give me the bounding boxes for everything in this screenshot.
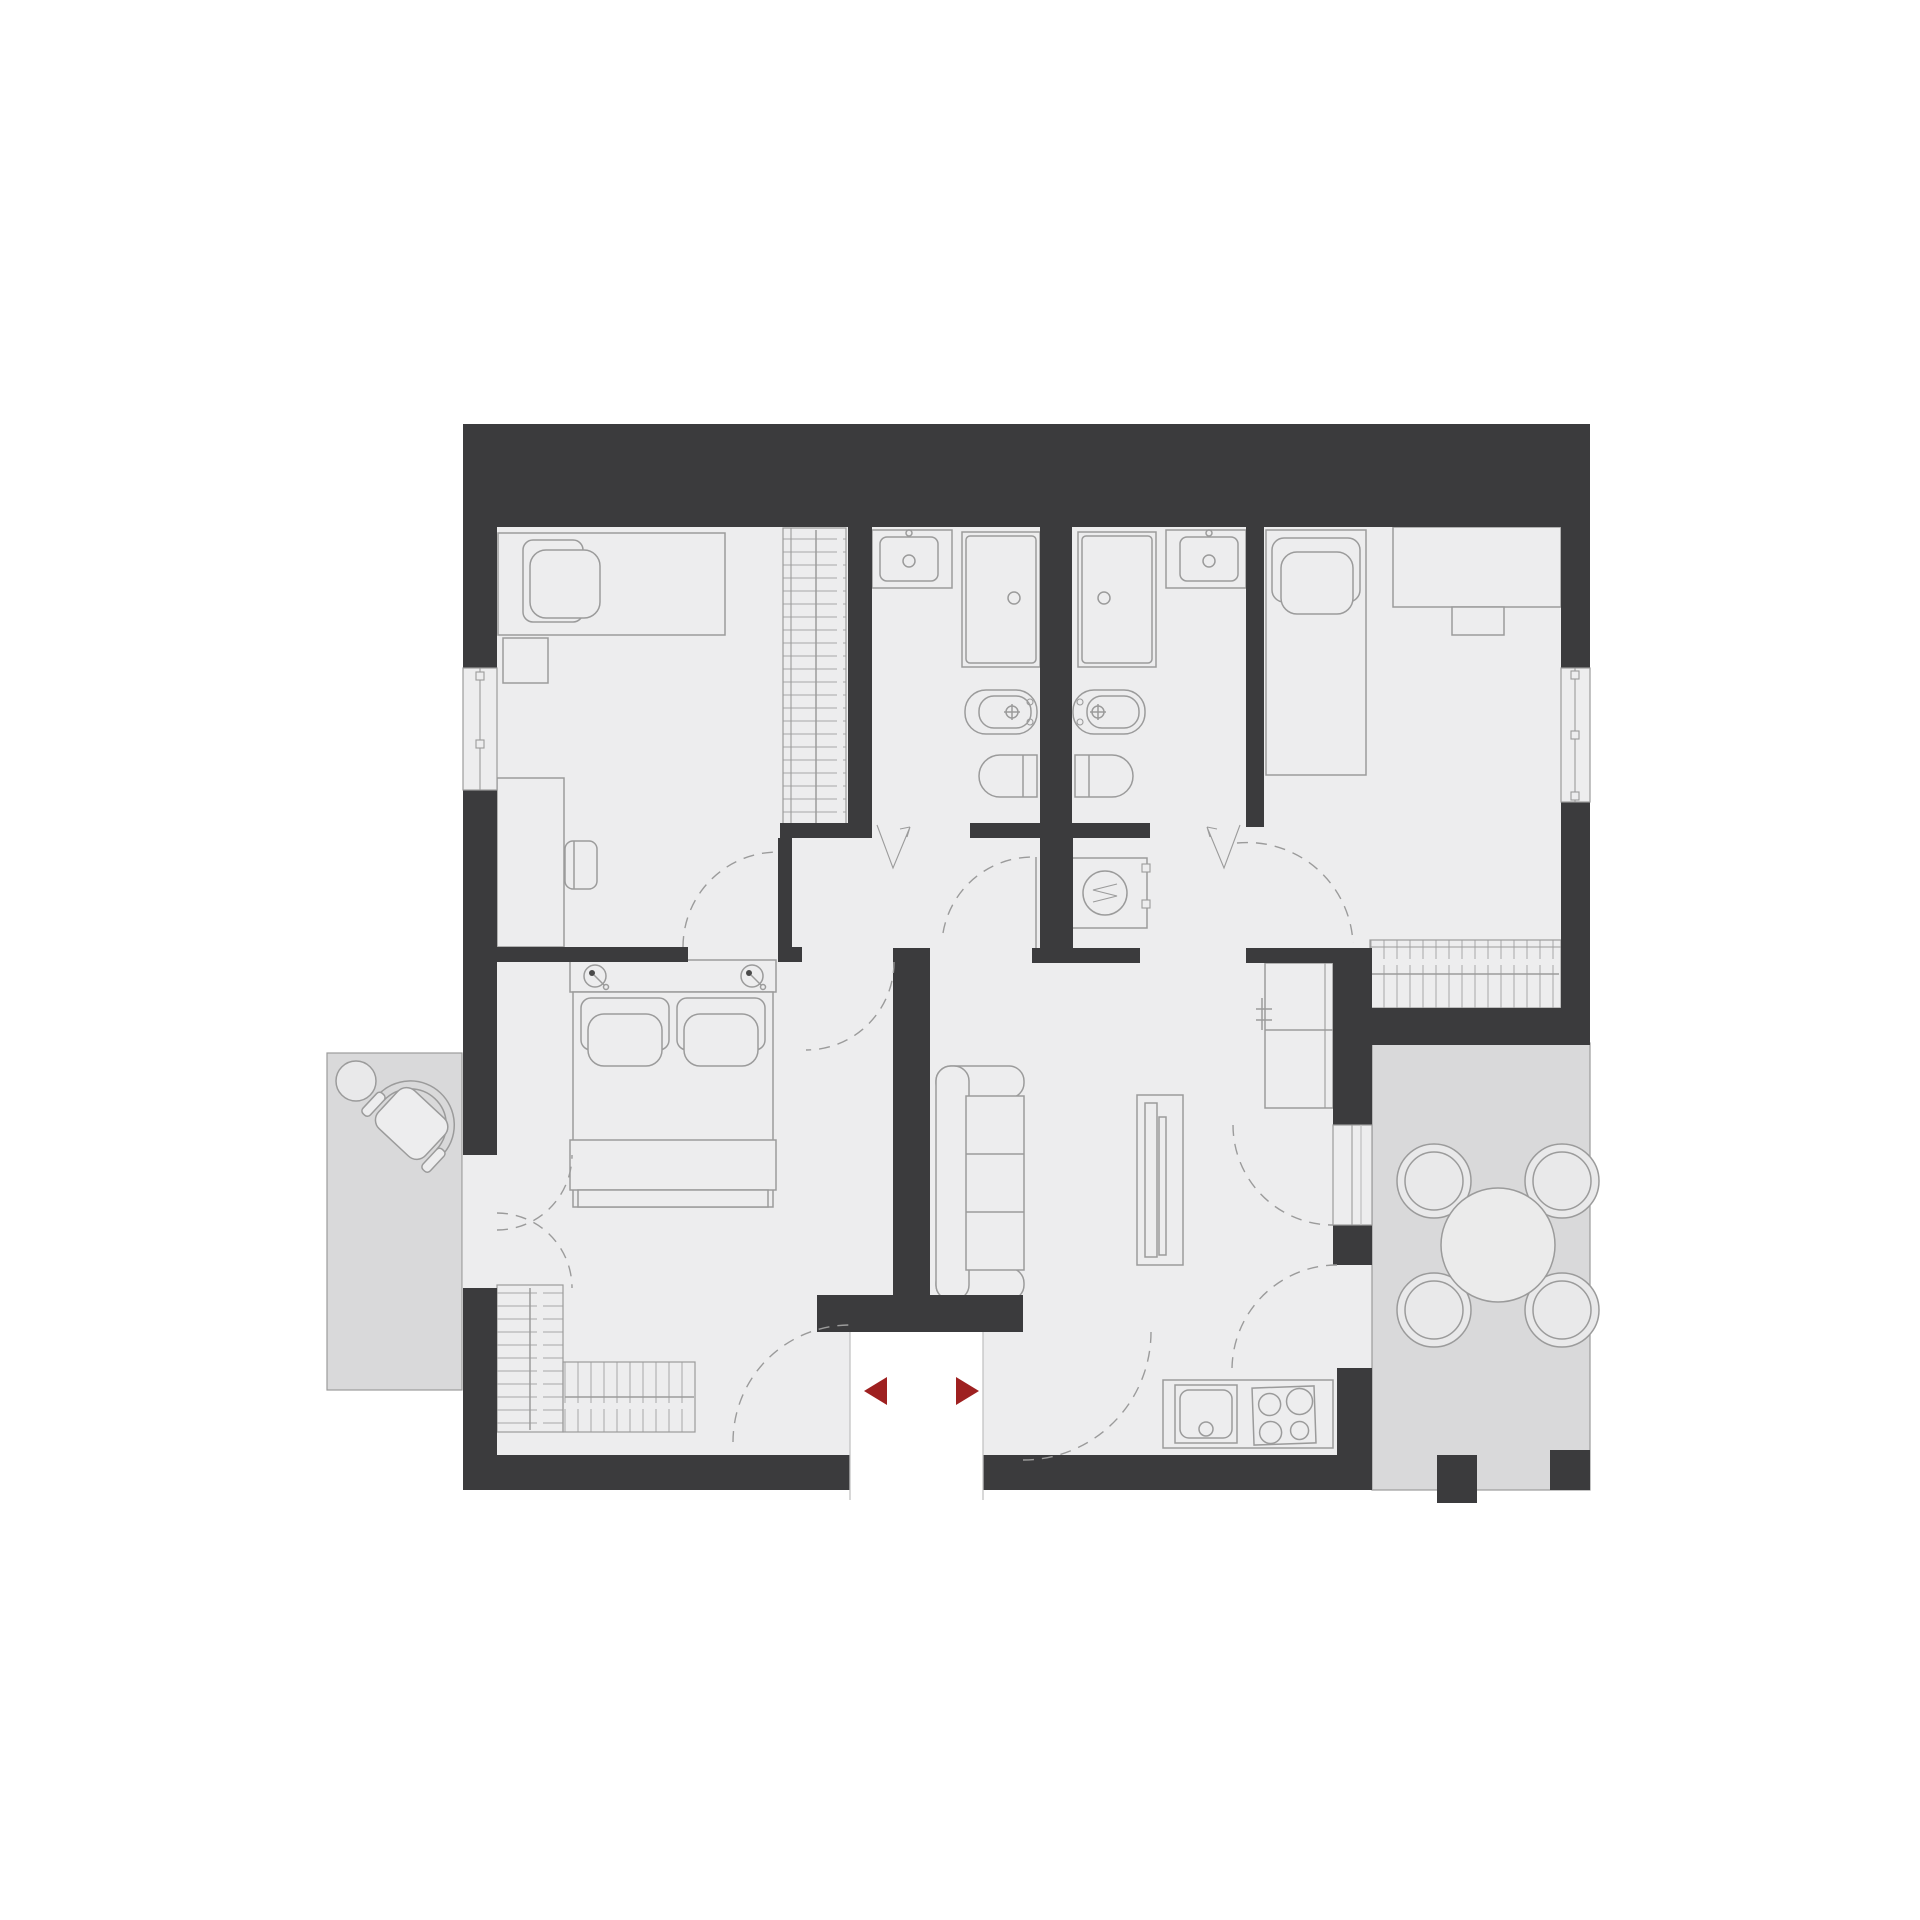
wall-bath1-bottom-b bbox=[970, 823, 1072, 838]
terrace-side-table bbox=[336, 1061, 376, 1101]
wall-kitchen-balcony bbox=[1333, 948, 1372, 1125]
window-handle bbox=[476, 672, 484, 680]
window-right bbox=[1561, 668, 1590, 802]
sofa-back bbox=[936, 1066, 969, 1300]
master-pillow-right-inner bbox=[684, 1014, 758, 1066]
master-pillow-left-inner bbox=[588, 1014, 662, 1066]
wall-washer-closet bbox=[1040, 838, 1073, 948]
wall-balcony-window-post bbox=[1333, 1225, 1372, 1265]
wall-balcony-door-post bbox=[1337, 1368, 1372, 1455]
bath2-bathtub bbox=[1078, 532, 1156, 667]
bedroom2-pillow-inner bbox=[1281, 552, 1353, 614]
wall-between-baths bbox=[1040, 527, 1072, 838]
window-handle bbox=[1571, 671, 1579, 679]
sofa-seat bbox=[966, 1096, 1024, 1270]
window-handle bbox=[1571, 792, 1579, 800]
wall-master-door-stub bbox=[778, 947, 802, 962]
bedroom2-desk bbox=[1393, 527, 1561, 607]
balcony-post-b bbox=[1550, 1450, 1590, 1490]
sofa bbox=[936, 1066, 1024, 1300]
bedroom1-nightstand bbox=[503, 638, 548, 683]
tv-screen bbox=[1159, 1117, 1166, 1255]
floor-plan-root bbox=[327, 424, 1599, 1503]
master-foot-bench bbox=[570, 1140, 776, 1190]
wall-hall-stub bbox=[1032, 948, 1140, 963]
bath2-toilet bbox=[1075, 755, 1133, 797]
wall-bath1-bottom-a bbox=[780, 823, 870, 838]
wall-top bbox=[463, 424, 1590, 527]
window-left bbox=[463, 668, 497, 790]
window-handle bbox=[476, 740, 484, 748]
wall-left-middle bbox=[463, 790, 497, 1155]
wall-bottom-left bbox=[463, 1455, 850, 1490]
washing-machine-hinge-bottom bbox=[1142, 900, 1150, 908]
balcony-round-table bbox=[1441, 1188, 1555, 1302]
bedroom1-chair bbox=[565, 841, 597, 889]
tv-panel bbox=[1145, 1103, 1157, 1257]
entrance-recess bbox=[850, 1332, 983, 1500]
bedroom1-pillow-inner bbox=[530, 550, 600, 618]
bath1-toilet bbox=[979, 755, 1037, 797]
kitchen-hob bbox=[1252, 1386, 1316, 1445]
floor-plan-page bbox=[0, 0, 1920, 1920]
floor-plan-canvas bbox=[0, 0, 1920, 1920]
wall-bedroom1-stub bbox=[778, 838, 792, 962]
wall-entrance-lintel bbox=[817, 1295, 1023, 1332]
balcony-post-a bbox=[1437, 1455, 1477, 1503]
master-headboard bbox=[570, 960, 776, 992]
wall-wardrobe2-band bbox=[1372, 1008, 1590, 1045]
bath1-sink bbox=[880, 537, 938, 581]
bath2-sink bbox=[1180, 537, 1238, 581]
wall-right-upper bbox=[1561, 424, 1590, 668]
wall-bottom-right bbox=[983, 1455, 1372, 1490]
bedroom1-desk bbox=[497, 778, 564, 947]
master-bed-base bbox=[578, 1190, 768, 1207]
bedroom1-wardrobe bbox=[783, 528, 846, 828]
kitchen-tall-unit bbox=[1265, 963, 1333, 1108]
wall-bath2-bedroom2 bbox=[1246, 527, 1264, 827]
terrace-door-reveal bbox=[463, 1155, 497, 1288]
window-balcony bbox=[1333, 1125, 1372, 1225]
wall-left-upper bbox=[463, 424, 497, 668]
wall-bath2-bottom bbox=[1072, 823, 1150, 838]
wall-bedroom1-master bbox=[497, 947, 688, 962]
wall-master-living bbox=[893, 948, 930, 1295]
bath1-bathtub bbox=[962, 532, 1040, 667]
bedroom2-chair bbox=[1452, 607, 1504, 635]
kitchen-sink bbox=[1180, 1390, 1232, 1438]
washing-machine-hinge-top bbox=[1142, 864, 1150, 872]
wall-bedroom1-bath1 bbox=[848, 527, 872, 838]
window-handle bbox=[1571, 731, 1579, 739]
